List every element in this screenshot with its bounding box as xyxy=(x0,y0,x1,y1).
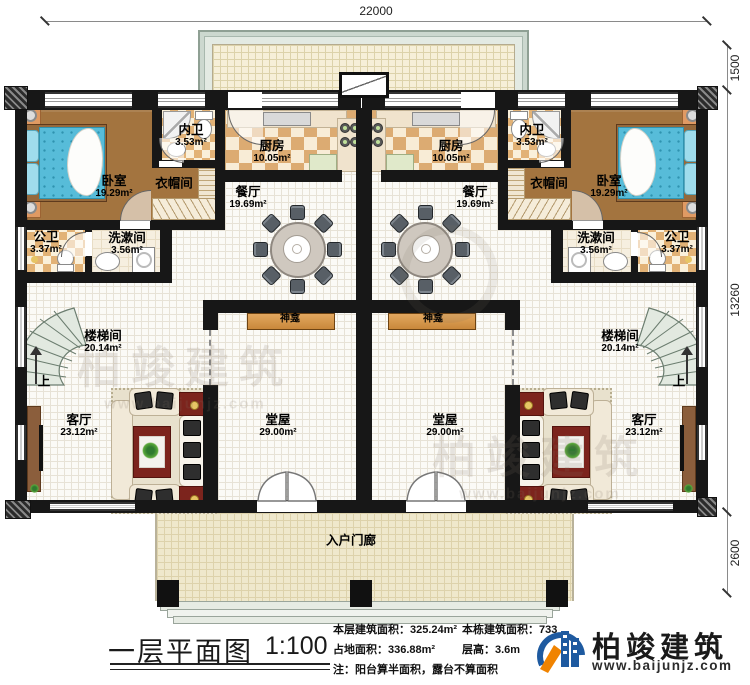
company-website[interactable]: www.baijunjz.com xyxy=(592,658,733,673)
cushion xyxy=(183,420,201,436)
stove-burner xyxy=(340,123,350,133)
tv xyxy=(39,425,43,471)
cushion xyxy=(183,442,201,458)
dim-terrace-depth: 1500 xyxy=(728,55,742,82)
room-label-cloakroom-right: 衣帽间 xyxy=(530,177,568,191)
entry-door-opening xyxy=(257,501,317,512)
shrine-label-left: 神龛 xyxy=(280,315,300,326)
wall xyxy=(215,110,225,230)
window xyxy=(697,227,707,270)
room-label-bedroom-left: 卧室 19.29m² xyxy=(95,175,132,199)
room-label-cloakroom-left: 衣帽间 xyxy=(155,177,193,191)
plant xyxy=(30,484,39,493)
dining-table-dot xyxy=(292,244,302,254)
chair xyxy=(253,242,268,257)
porch-column xyxy=(350,580,372,607)
cushion xyxy=(570,391,589,410)
dim-body-height: 13260 xyxy=(728,283,742,316)
wardrobe xyxy=(506,198,571,220)
cushion xyxy=(183,464,201,480)
window xyxy=(588,502,673,511)
wall xyxy=(203,300,361,313)
room-label-washroom-right: 洗漱间 3.56m² xyxy=(577,232,615,256)
window xyxy=(50,502,135,511)
room-label-public-bath-left: 公卫 3.37m² xyxy=(30,231,62,255)
chair xyxy=(419,205,434,220)
pilaster xyxy=(5,500,31,519)
bath-accessory xyxy=(685,256,692,263)
wall xyxy=(15,272,172,283)
door-opening xyxy=(85,232,92,256)
unit-left xyxy=(15,90,361,513)
company-logo-icon xyxy=(534,623,588,677)
stair-arrow-icon xyxy=(30,346,42,355)
window xyxy=(16,227,26,270)
window xyxy=(697,425,707,460)
pilaster xyxy=(4,86,28,110)
wall xyxy=(505,300,520,330)
window xyxy=(262,92,338,108)
stat-floor-area: 本层建筑面积：325.24m² xyxy=(333,621,457,637)
room-label-living-left: 客厅 23.12m² xyxy=(60,414,97,438)
coffee-table-plant xyxy=(142,442,159,459)
dim-porch-depth: 2600 xyxy=(728,540,742,567)
room-label-living-right: 客厅 23.12m² xyxy=(625,414,662,438)
window xyxy=(16,425,26,460)
room-label-hall-right: 堂屋 29.00m² xyxy=(426,414,463,438)
entry-door-opening xyxy=(406,501,466,512)
chair xyxy=(382,242,397,257)
pilaster xyxy=(697,497,717,517)
wall xyxy=(498,110,508,230)
chair xyxy=(290,279,305,294)
window xyxy=(591,92,678,108)
opening-dashed xyxy=(512,330,514,385)
wall xyxy=(551,272,708,283)
wall xyxy=(381,170,498,182)
stat-land-area: 占地面积：336.88m² xyxy=(333,641,435,657)
stair-arrow-icon xyxy=(681,346,693,355)
stair-direction-line xyxy=(686,352,688,384)
wall xyxy=(203,300,218,330)
room-label-hall-left: 堂屋 29.00m² xyxy=(259,414,296,438)
room-label-stairwell-right: 楼梯间 20.14m² xyxy=(601,330,639,354)
chair xyxy=(327,242,342,257)
window xyxy=(697,307,707,367)
plant xyxy=(684,484,693,493)
floor-plan-canvas: 22000 1500 13260 2600 xyxy=(0,0,750,685)
watermark: 柏竣建筑 www.baijunjz.com xyxy=(432,422,648,503)
room-label-dining-left: 餐厅 19.69m² xyxy=(229,186,266,210)
door-opening xyxy=(573,221,603,229)
cushion xyxy=(549,391,568,410)
room-label-kitchen-right: 厨房 10.05m² xyxy=(432,140,469,164)
cloak-cabinet xyxy=(507,168,525,202)
window xyxy=(16,307,26,367)
stove-burner xyxy=(373,137,383,147)
window xyxy=(385,92,461,108)
window xyxy=(158,92,205,108)
stair-up-label-left: 上 xyxy=(38,375,51,389)
cloak-cabinet xyxy=(198,168,216,202)
bath-accessory xyxy=(31,256,38,263)
dim-line-top xyxy=(45,21,707,22)
stair-direction-line xyxy=(35,352,37,384)
terrace-window xyxy=(339,72,389,98)
wall xyxy=(551,230,563,272)
kitchen-sink xyxy=(263,112,311,126)
room-label-public-bath-right: 公卫 3.37m² xyxy=(661,231,693,255)
terrace-door-opening xyxy=(228,92,262,108)
stat-floor-height: 层高：3.6m xyxy=(462,641,520,657)
porch-column xyxy=(157,580,179,607)
toilet-tank xyxy=(57,264,74,272)
plan-scale: 1:100 xyxy=(265,632,328,661)
room-label-dining-right: 餐厅 19.69m² xyxy=(456,186,493,210)
dim-width-top: 22000 xyxy=(359,4,392,18)
double-door-icon xyxy=(257,468,317,501)
tv-cabinet xyxy=(682,406,696,492)
door-opening xyxy=(120,221,150,229)
room-label-inner-bath-right: 内卫 3.53m² xyxy=(516,124,548,148)
wall xyxy=(225,170,342,182)
wardrobe xyxy=(152,198,217,220)
stat-note: 注：阳台算半面积，露台不算面积 xyxy=(333,661,498,677)
porch-column xyxy=(546,580,568,607)
room-label-bedroom-right: 卧室 19.29m² xyxy=(590,175,627,199)
fridge xyxy=(309,154,337,171)
chair xyxy=(290,205,305,220)
room-label-washroom-left: 洗漱间 3.56m² xyxy=(108,232,146,256)
stair-up-label-right: 上 xyxy=(673,375,686,389)
wall xyxy=(498,220,708,230)
title-underline xyxy=(110,663,330,670)
window xyxy=(518,92,565,108)
pilaster xyxy=(697,86,718,110)
room-label-stairwell-left: 楼梯间 20.14m² xyxy=(84,330,122,354)
stove-burner xyxy=(340,137,350,147)
shrine-label-right: 神龛 xyxy=(423,315,443,326)
terrace-door-opening xyxy=(461,92,495,108)
kitchen-sink xyxy=(412,112,460,126)
wall xyxy=(160,230,172,272)
tv xyxy=(680,425,684,471)
toilet-tank xyxy=(649,264,666,272)
watermark-ring xyxy=(400,225,498,323)
room-label-inner-bath-left: 内卫 3.53m² xyxy=(175,124,207,148)
center-wall xyxy=(356,108,372,513)
window xyxy=(45,92,132,108)
fridge xyxy=(386,154,414,171)
stove-burner xyxy=(373,123,383,133)
room-label-kitchen-left: 厨房 10.05m² xyxy=(253,140,290,164)
entry-porch-label: 入户门廊 xyxy=(326,534,376,548)
